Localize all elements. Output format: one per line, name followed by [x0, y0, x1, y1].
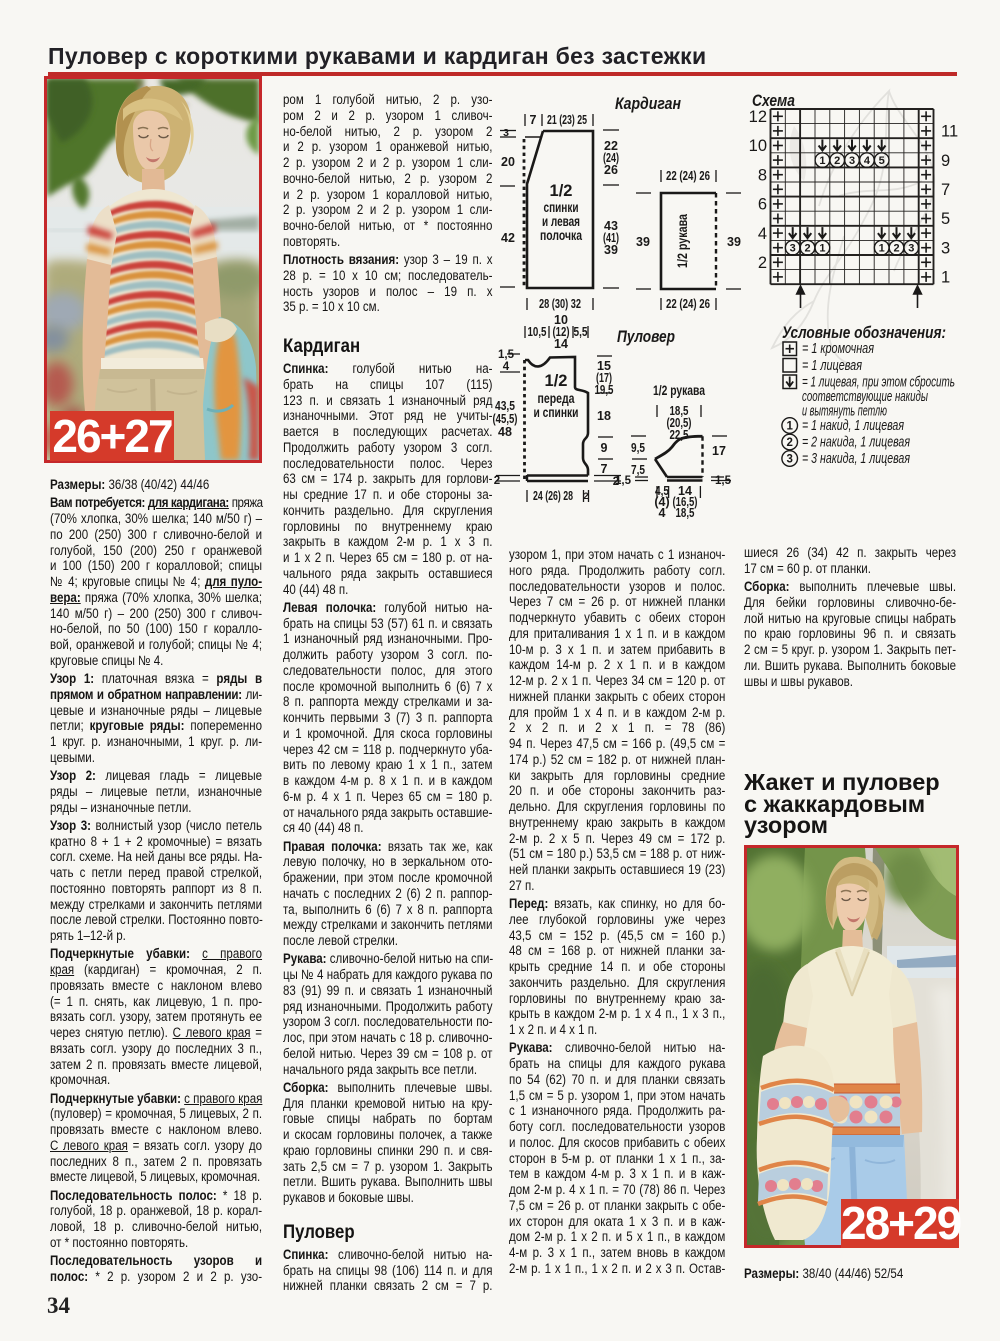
svg-text:Условные обозначения:: Условные обозначения: [782, 323, 946, 342]
svg-text:7: 7 [601, 462, 608, 476]
svg-text:1/2: 1/2 [545, 372, 568, 390]
svg-text:2: 2 [893, 243, 899, 255]
svg-text:4: 4 [503, 361, 510, 373]
svg-text:17: 17 [712, 444, 726, 458]
svg-text:7: 7 [941, 181, 950, 199]
svg-text:и спинки: и спинки [534, 405, 579, 420]
svg-text:12: 12 [749, 108, 767, 126]
svg-text:39: 39 [636, 235, 650, 249]
svg-text:22 (24) 26: 22 (24) 26 [666, 297, 710, 311]
svg-text:3: 3 [786, 454, 792, 466]
svg-text:10,5: 10,5 [528, 325, 547, 339]
svg-text:4: 4 [864, 155, 871, 167]
svg-text:43,5: 43,5 [495, 399, 515, 413]
svg-text:2: 2 [786, 437, 792, 449]
svg-text:1: 1 [941, 269, 950, 287]
svg-text:полочка: полочка [540, 228, 582, 243]
svg-text:18: 18 [597, 409, 611, 423]
svg-text:= 2 накида, 1 лицевая: = 2 накида, 1 лицевая [802, 435, 910, 451]
svg-text:(45,5): (45,5) [493, 412, 518, 426]
svg-text:28 (30) 32: 28 (30) 32 [539, 297, 581, 311]
svg-text:24 (26) 28: 24 (26) 28 [533, 489, 573, 503]
svg-text:9: 9 [601, 441, 608, 455]
svg-text:20: 20 [501, 155, 515, 169]
svg-text:1: 1 [786, 421, 793, 433]
svg-text:10: 10 [749, 137, 767, 155]
svg-text:5: 5 [941, 210, 950, 228]
svg-text:и левая: и левая [542, 214, 580, 229]
svg-text:= 3 накида, 1 лицевая: = 3 накида, 1 лицевая [802, 451, 910, 467]
svg-text:2: 2 [758, 254, 767, 272]
svg-text:4: 4 [659, 506, 666, 520]
svg-text:21 (23) 25: 21 (23) 25 [547, 113, 587, 127]
svg-text:7: 7 [530, 113, 537, 127]
svg-text:1,5: 1,5 [615, 475, 632, 487]
svg-text:11: 11 [941, 123, 958, 141]
svg-text:Кардиган: Кардиган [615, 94, 681, 113]
svg-text:19,5: 19,5 [595, 383, 614, 397]
svg-text:3: 3 [849, 155, 855, 167]
svg-text:3: 3 [790, 243, 796, 255]
svg-text:2: 2 [834, 155, 840, 167]
svg-text:1,5: 1,5 [715, 475, 732, 487]
svg-text:2: 2 [583, 491, 588, 501]
svg-text:2: 2 [494, 475, 500, 487]
svg-text:8: 8 [758, 166, 767, 184]
svg-text:5: 5 [879, 155, 885, 167]
svg-text:4: 4 [758, 225, 767, 243]
svg-text:= 1 кромочная: = 1 кромочная [802, 341, 874, 357]
svg-text:1/2 рукава: 1/2 рукава [653, 383, 705, 398]
svg-text:спинки: спинки [544, 200, 579, 215]
svg-text:3: 3 [941, 239, 950, 257]
svg-text:6: 6 [758, 196, 767, 214]
svg-text:14: 14 [554, 337, 568, 351]
svg-text:39: 39 [727, 235, 741, 249]
svg-text:2: 2 [804, 243, 810, 255]
svg-text:42: 42 [501, 231, 515, 245]
svg-text:1/2 рукава: 1/2 рукава [675, 214, 690, 268]
svg-text:22 (24) 26: 22 (24) 26 [666, 169, 710, 183]
svg-text:48: 48 [498, 425, 512, 439]
svg-text:18,5: 18,5 [676, 506, 695, 520]
svg-text:1: 1 [819, 155, 825, 167]
svg-text:1,5: 1,5 [498, 349, 515, 361]
svg-text:1: 1 [819, 243, 825, 255]
svg-text:9: 9 [941, 152, 950, 170]
svg-text:9,5: 9,5 [631, 441, 645, 455]
svg-text:5,5: 5,5 [574, 325, 588, 339]
svg-text:= 1 накид, 1 лицевая: = 1 накид, 1 лицевая [802, 418, 904, 434]
svg-text:1: 1 [879, 243, 885, 255]
svg-text:22,5: 22,5 [670, 428, 689, 442]
svg-text:3: 3 [908, 243, 914, 255]
svg-text:переда: переда [538, 391, 575, 406]
svg-text:= 1 лицевая: = 1 лицевая [802, 358, 862, 374]
svg-text:1/2: 1/2 [550, 182, 573, 200]
svg-text:Пуловер: Пуловер [617, 327, 675, 346]
svg-text:26: 26 [604, 163, 618, 177]
svg-text:7,5: 7,5 [631, 463, 645, 477]
svg-text:39: 39 [604, 243, 618, 257]
svg-text:3: 3 [503, 127, 509, 139]
